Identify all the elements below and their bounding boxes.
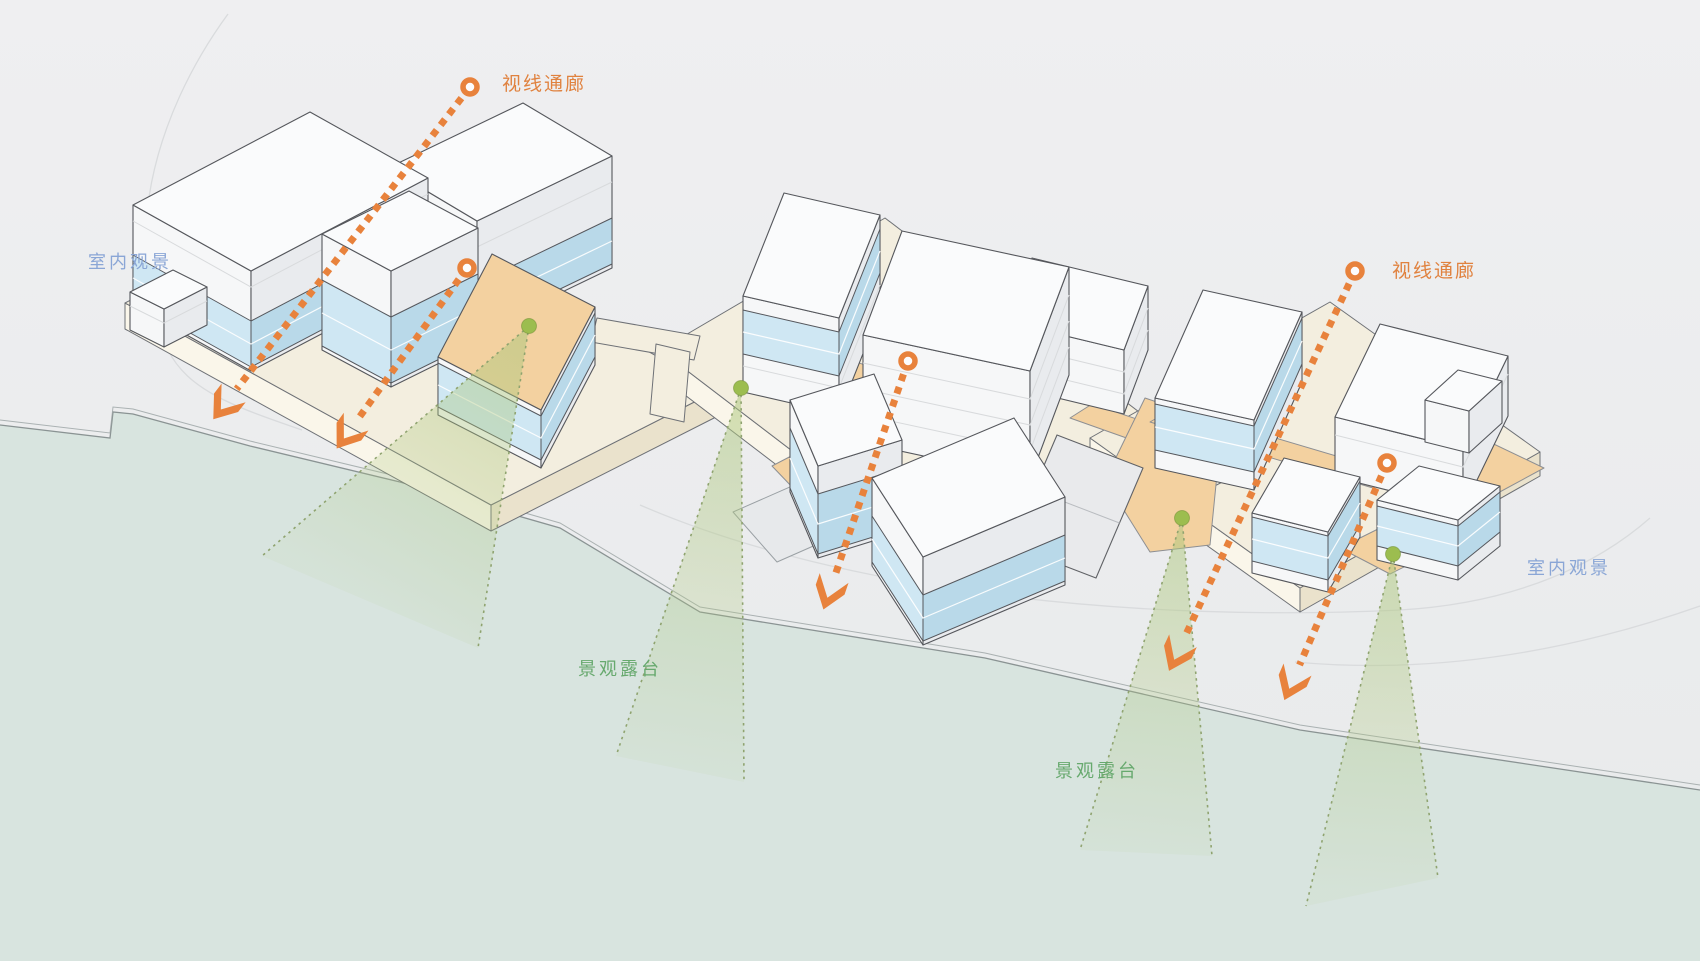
site-view-analysis-diagram: 视线通廊 视线通廊 室内观景 室内观景 景观露台 景观露台 (0, 0, 1700, 961)
viewpoint-dot (522, 319, 537, 334)
sight-corridor-origin (901, 354, 915, 368)
diagram-canvas: 视线通廊 视线通廊 室内观景 室内观景 景观露台 景观露台 (0, 0, 1700, 961)
indoor-viewing-label-right: 室内观景 (1527, 558, 1611, 578)
sight-corridor-origin (463, 80, 477, 94)
walkway-connector (650, 344, 690, 422)
sight-corridor-origin (1348, 264, 1362, 278)
sight-corridor-label-right: 视线通廊 (1392, 260, 1476, 282)
sight-corridor-origin (460, 261, 474, 275)
viewpoint-dot (1386, 547, 1401, 562)
landscape-terrace-label-left: 景观露台 (578, 659, 662, 679)
sight-corridor-label-left: 视线通廊 (502, 73, 586, 95)
indoor-viewing-label-left: 室内观景 (88, 252, 172, 272)
viewpoint-dot (734, 381, 749, 396)
sight-corridor-origin (1380, 456, 1394, 470)
viewpoint-dot (1175, 511, 1190, 526)
landscape-terrace-label-right: 景观露台 (1055, 761, 1139, 781)
